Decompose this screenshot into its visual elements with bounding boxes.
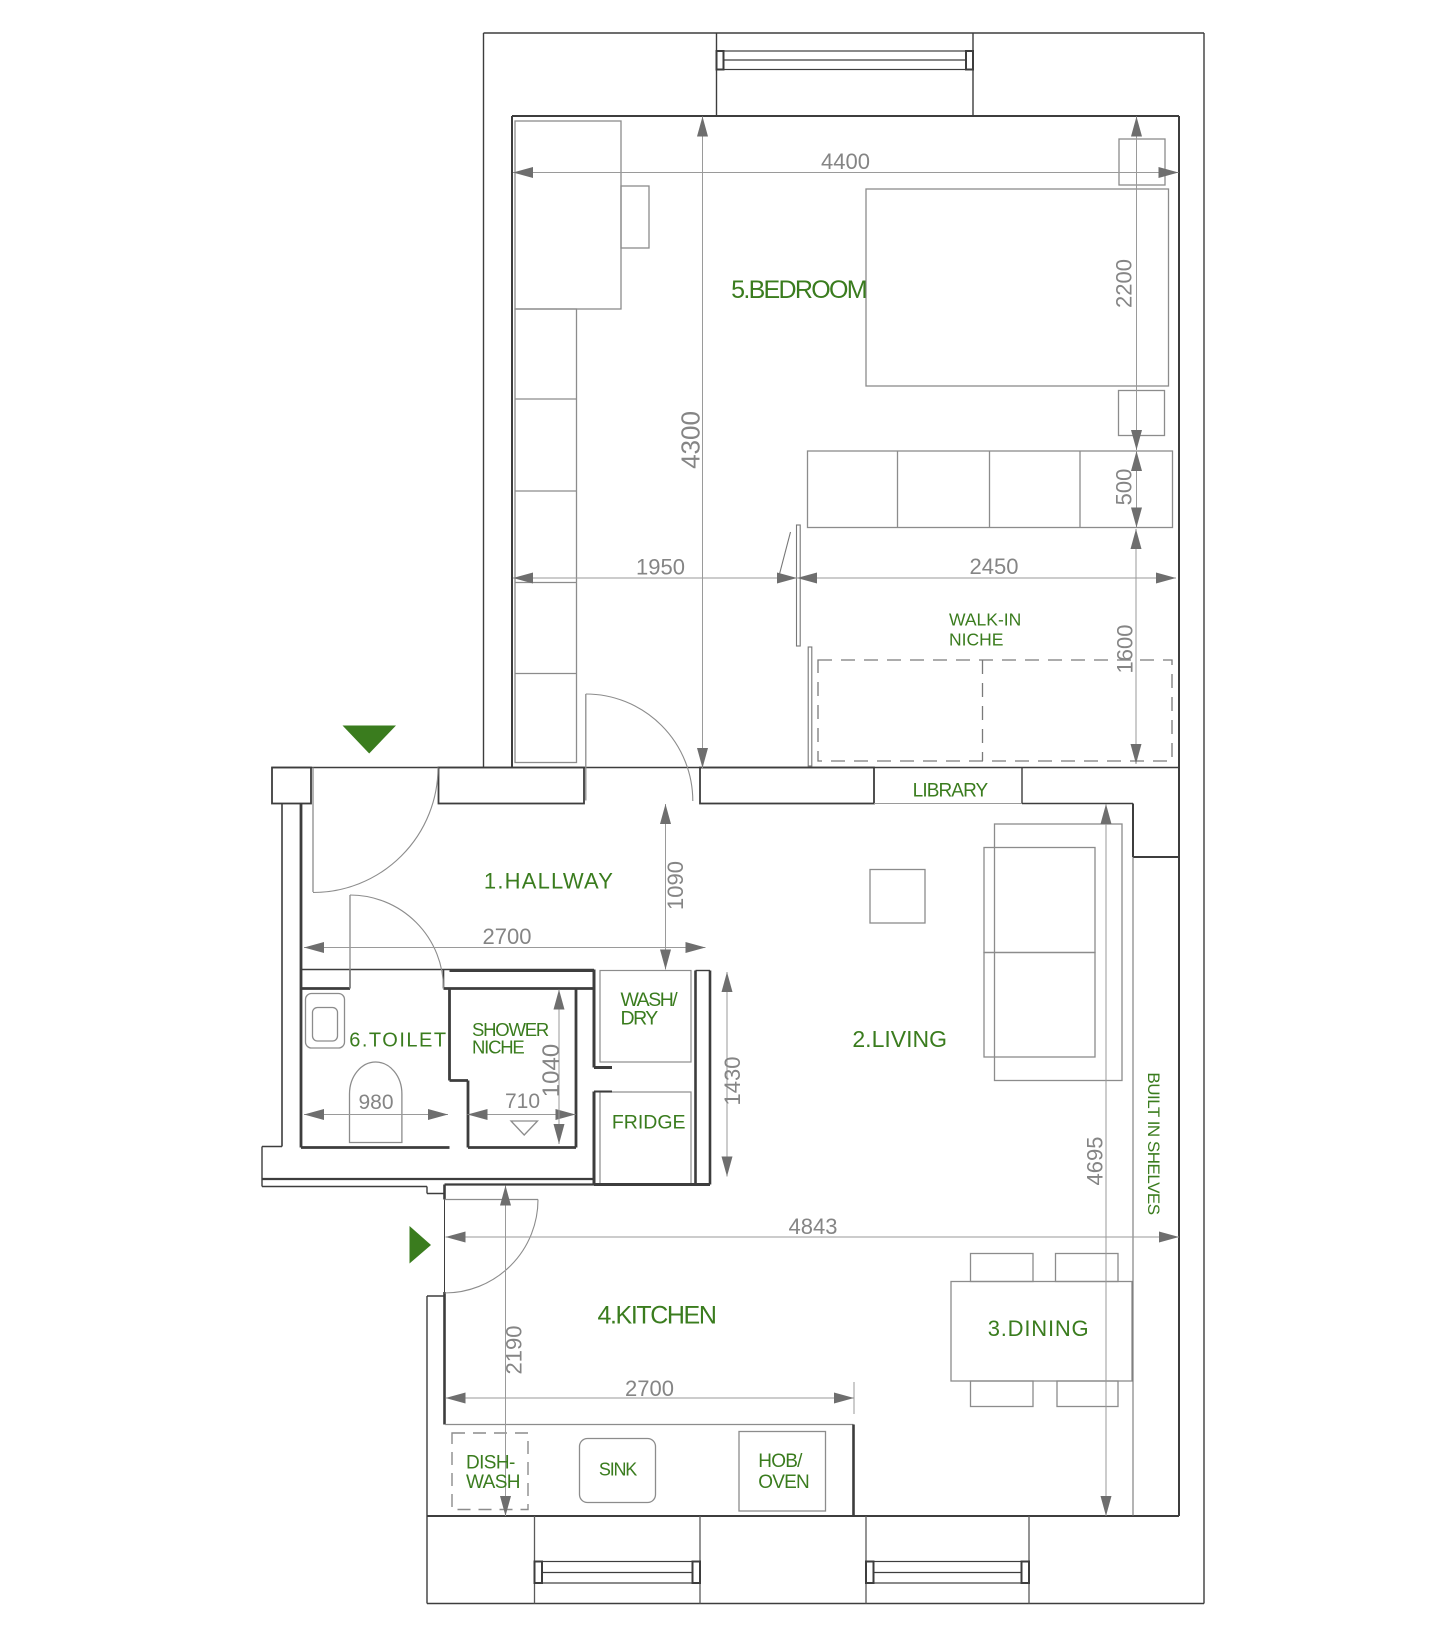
svg-text:2200: 2200 (1112, 259, 1137, 308)
svg-text:4300: 4300 (676, 411, 706, 469)
svg-text:LIBRARY: LIBRARY (913, 781, 989, 802)
svg-text:NICHE: NICHE (472, 1037, 524, 1058)
svg-text:DISH-: DISH- (466, 1453, 515, 1474)
svg-text:1090: 1090 (663, 861, 688, 910)
svg-text:OVEN: OVEN (758, 1472, 809, 1493)
svg-text:4695: 4695 (1083, 1137, 1108, 1186)
svg-text:2700: 2700 (625, 1376, 674, 1401)
svg-text:2190: 2190 (502, 1326, 527, 1375)
svg-text:WALK-IN: WALK-IN (949, 610, 1021, 630)
svg-text:2700: 2700 (483, 924, 532, 949)
svg-text:4.KITCHEN: 4.KITCHEN (598, 1302, 716, 1330)
svg-text:6.TOILET: 6.TOILET (349, 1030, 447, 1052)
svg-text:1950: 1950 (636, 555, 685, 580)
svg-text:WASH: WASH (466, 1472, 520, 1493)
svg-text:1040: 1040 (538, 1044, 565, 1097)
svg-text:FRIDGE: FRIDGE (612, 1112, 686, 1134)
svg-text:HOB/: HOB/ (758, 1451, 803, 1472)
svg-text:BUILT IN SHELVES: BUILT IN SHELVES (1144, 1072, 1163, 1214)
svg-text:SINK: SINK (599, 1460, 637, 1480)
svg-text:4843: 4843 (789, 1214, 838, 1239)
svg-text:5.BEDROOM: 5.BEDROOM (731, 276, 866, 304)
svg-text:3.DINING: 3.DINING (988, 1316, 1090, 1341)
svg-text:4400: 4400 (821, 149, 870, 174)
svg-text:DRY: DRY (621, 1008, 659, 1030)
svg-text:2.LIVING: 2.LIVING (852, 1026, 947, 1052)
svg-text:2450: 2450 (970, 554, 1019, 579)
svg-text:1600: 1600 (1113, 625, 1138, 674)
svg-text:980: 980 (358, 1091, 393, 1114)
svg-text:1430: 1430 (720, 1057, 745, 1106)
svg-text:NICHE: NICHE (949, 630, 1003, 650)
svg-text:710: 710 (505, 1090, 540, 1113)
svg-text:1.HALLWAY: 1.HALLWAY (484, 869, 614, 894)
svg-text:500: 500 (1112, 469, 1137, 506)
